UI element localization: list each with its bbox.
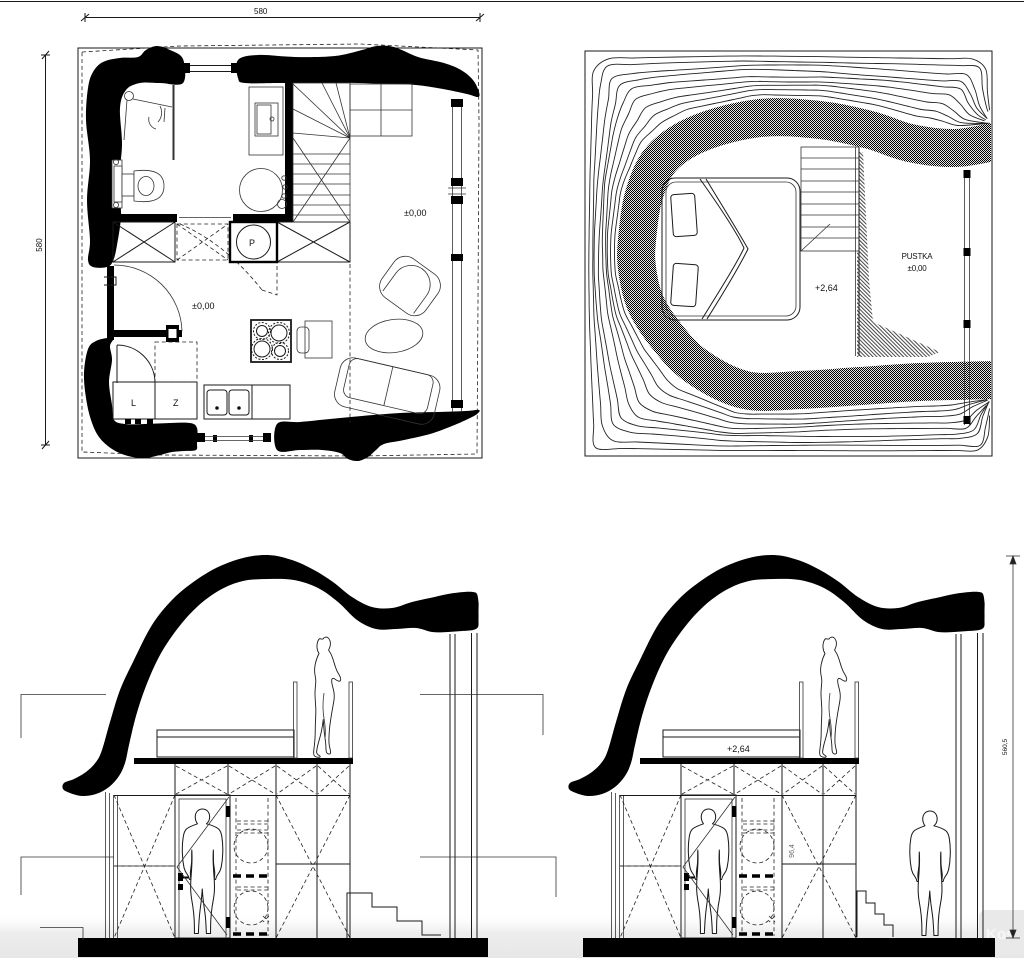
svg-text:L: L: [131, 398, 136, 408]
svg-text:±0,00: ±0,00: [908, 264, 928, 273]
svg-text:Z: Z: [173, 398, 179, 408]
svg-text:+2,64: +2,64: [815, 283, 838, 293]
svg-text:580: 580: [35, 238, 44, 252]
svg-text:580: 580: [254, 7, 268, 16]
svg-text:96,4: 96,4: [789, 844, 796, 858]
svg-text:P: P: [249, 238, 255, 248]
svg-text:±0,00: ±0,00: [192, 301, 214, 311]
svg-text:±0,00: ±0,00: [404, 208, 426, 218]
svg-text:PUSTKA: PUSTKA: [902, 252, 934, 261]
svg-text:+2,64: +2,64: [727, 744, 750, 754]
svg-text:560,5: 560,5: [1002, 738, 1009, 755]
